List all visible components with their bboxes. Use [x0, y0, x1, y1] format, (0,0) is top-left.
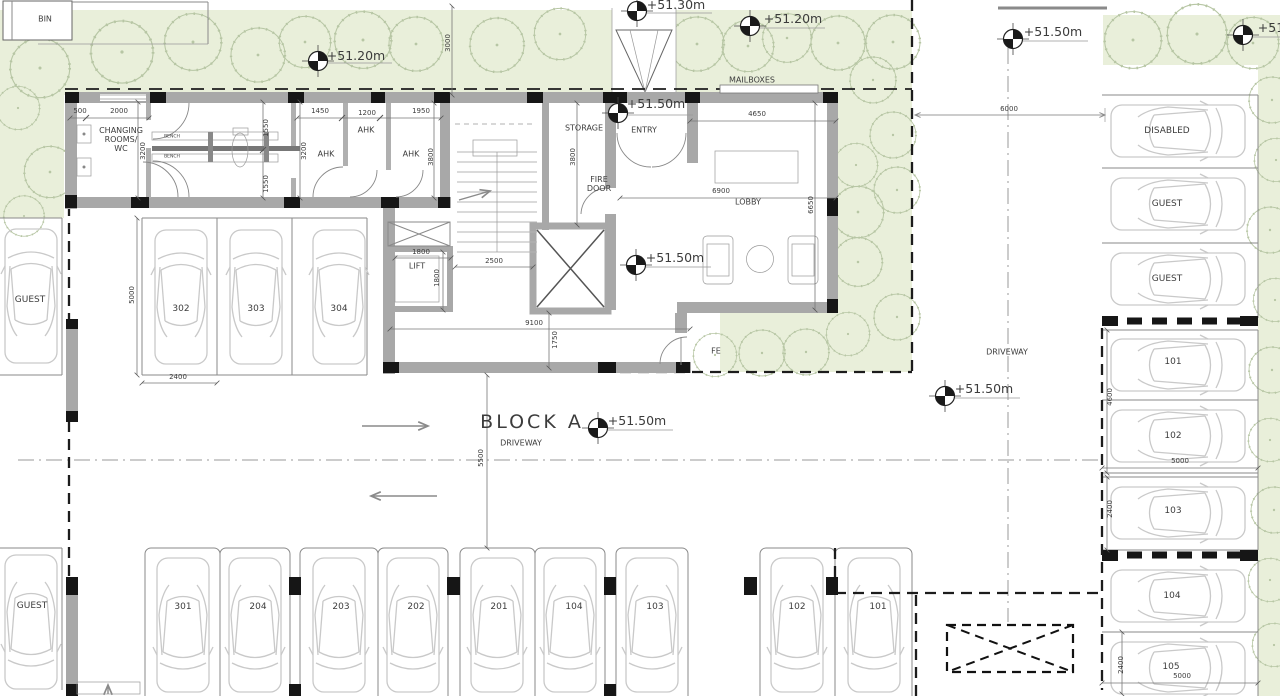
floor-plan-drawing [0, 0, 1280, 696]
parked-cars [1, 101, 1245, 696]
boundary-lines [65, 0, 1102, 696]
trees [0, 4, 1280, 666]
reserved-area-box [947, 625, 1073, 672]
driveway-centerlines [18, 48, 1100, 622]
core-lift-stairs [385, 124, 608, 312]
structural-columns [65, 92, 838, 696]
driveway-arrows [77, 426, 437, 694]
floor-plan: BINCHANGING ROOMS/ WCAHKAHKAHKSTORAGEENT… [0, 0, 1280, 696]
entrance-walkway [612, 8, 676, 95]
